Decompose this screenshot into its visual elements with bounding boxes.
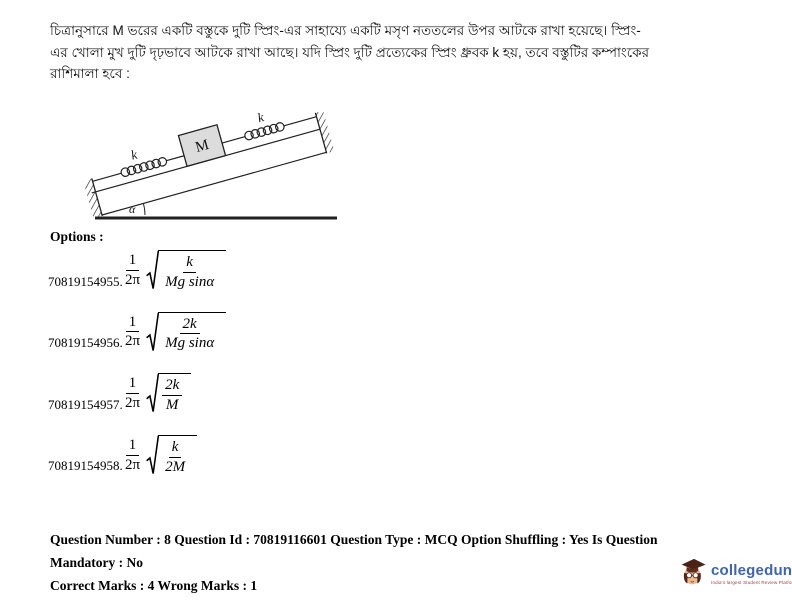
left-spring-label: k [129,147,139,163]
prefix-denominator: 2π [122,394,143,412]
options-heading: Options : [50,229,104,245]
question-metadata: Question Number : 8 Question Id : 708191… [50,528,710,597]
radicand-numerator: 2k [162,377,182,396]
radicand-denominator: 2M [162,458,188,476]
incline-group: M k k [85,108,334,218]
question-page: চিত্রানুসারে M ভরের একটি বস্তুকে দুটি স্… [0,0,792,612]
mascot-icon [680,556,708,588]
prefix-numerator: 1 [126,252,140,271]
option-id: 70819154955. [48,274,120,290]
option-formula: 12π kMg sinα [122,250,226,291]
option-row-2[interactable]: 70819154956. 12π 2kMg sinα [48,312,226,353]
question-line-3: রাশিমালা হবে : [50,63,750,85]
option-formula: 12π k2M [122,435,197,476]
question-line-1: চিত্রানুসারে M ভরের একটি বস্তুকে দুটি স্… [50,20,750,42]
angle-label: α [129,202,136,216]
prefix-denominator: 2π [122,271,143,289]
option-row-4[interactable]: 70819154958. 12π k2M [48,435,226,476]
radicand-numerator: k [169,439,182,458]
question-text: চিত্রানুসারে M ভরের একটি বস্তুকে দুটি স্… [50,20,750,85]
radicand-numerator: k [183,254,196,273]
prefix-denominator: 2π [122,332,143,350]
option-id: 70819154958. [48,458,120,474]
question-line-2: এর খোলা মুখ দুটি দৃঢ়ভাবে আটকে রাখা আছে।… [50,42,750,64]
brand-tagline: India's largest Student Review Platform [711,580,792,585]
collegedunia-logo[interactable]: collegedunia India's largest Student Rev… [680,556,792,588]
right-spring-label: k [256,109,266,125]
radicand-denominator: Mg sinα [162,273,217,291]
option-id: 70819154956. [48,335,120,351]
option-id: 70819154957. [48,397,120,413]
brand-name: collegedunia [711,562,792,579]
metadata-line-1: Question Number : 8 Question Id : 708191… [50,528,710,574]
right-spring [221,113,318,147]
radicand-numerator: 2k [180,316,200,335]
option-formula: 12π 2kMg sinα [122,312,226,353]
prefix-numerator: 1 [126,437,140,456]
option-row-1[interactable]: 70819154955. 12π kMg sinα [48,250,226,291]
prefix-numerator: 1 [126,314,140,333]
angle-arc [143,203,145,215]
metadata-line-2: Correct Marks : 4 Wrong Marks : 1 [50,574,710,597]
option-row-3[interactable]: 70819154957. 12π 2kM [48,373,226,414]
prefix-denominator: 2π [122,456,143,474]
prefix-numerator: 1 [126,375,140,394]
options-list: 70819154955. 12π kMg sinα 70819154956. 1… [48,250,226,496]
radicand-denominator: M [163,396,182,414]
radicand-denominator: Mg sinα [162,334,217,352]
incline-spring-diagram: α M k [85,108,350,226]
option-formula: 12π 2kM [122,373,191,414]
